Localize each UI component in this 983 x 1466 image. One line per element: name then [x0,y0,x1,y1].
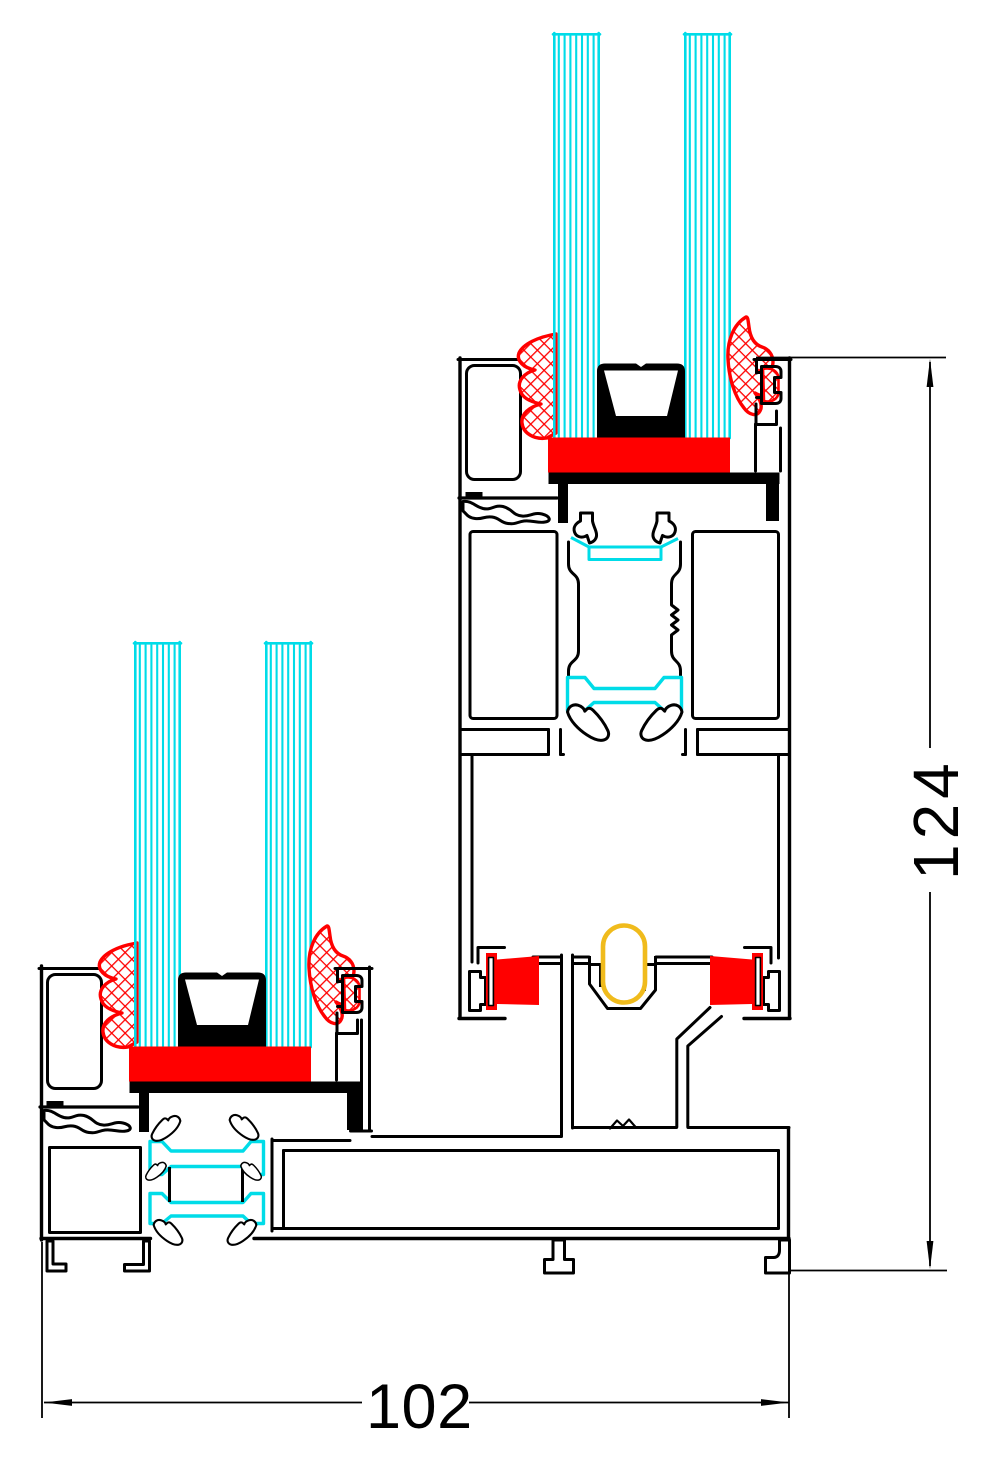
svg-text:102: 102 [366,1372,473,1442]
svg-text:124: 124 [900,758,972,880]
